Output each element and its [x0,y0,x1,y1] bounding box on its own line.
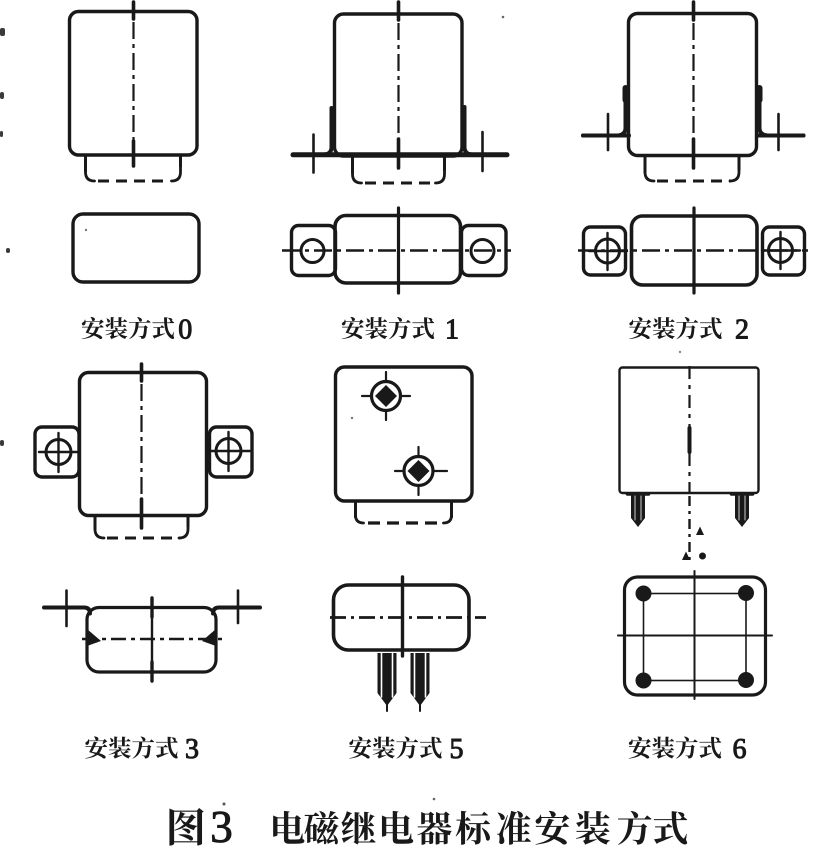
svg-text:6: 6 [733,734,747,765]
svg-text:0: 0 [178,315,192,346]
svg-text:5: 5 [450,734,464,765]
svg-text:3: 3 [185,734,199,765]
svg-text:1: 1 [445,315,459,346]
svg-text:3: 3 [210,802,233,852]
svg-text:2: 2 [735,315,749,346]
